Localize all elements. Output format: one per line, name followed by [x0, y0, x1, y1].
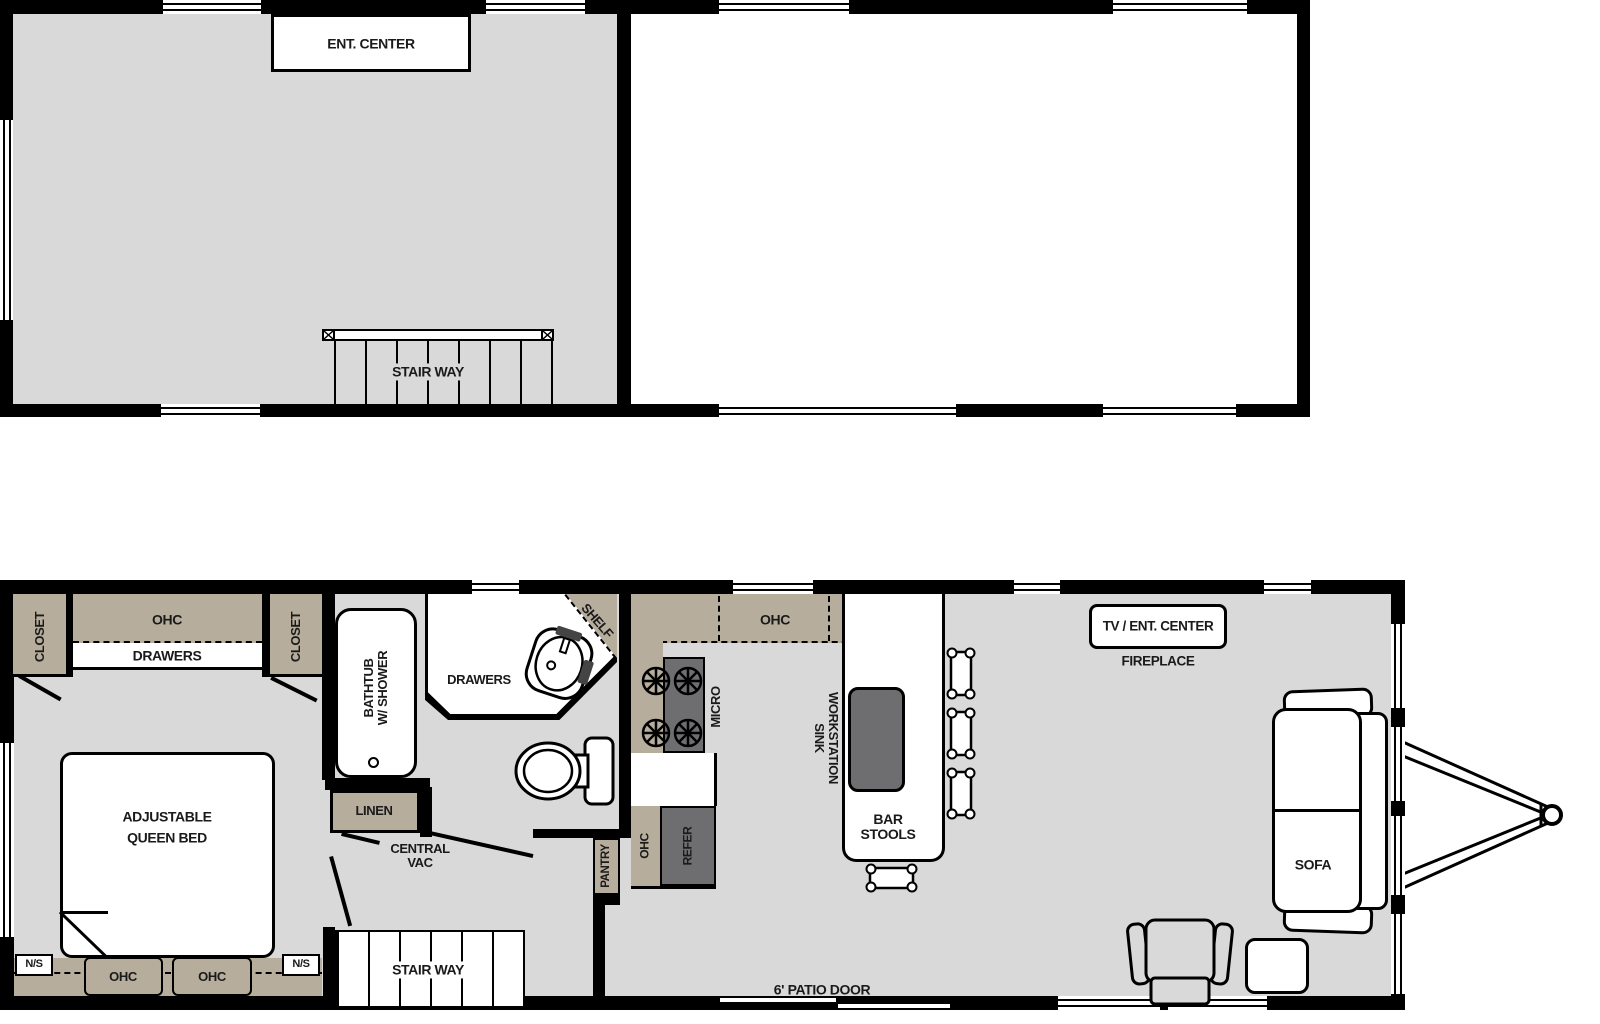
window: [0, 120, 13, 320]
window: [719, 0, 849, 14]
refer-label: REFER: [682, 827, 695, 866]
trailer-hitch-icon: [1398, 735, 1568, 895]
bar-stools-label: BAR STOOLS: [861, 812, 916, 842]
counter-edge: [631, 886, 716, 889]
loft-stair-rail: [322, 329, 554, 341]
kitchen-ohc-top-label: OHC: [760, 612, 790, 627]
tv-ent-center-label: TV / ENT. CENTER: [1103, 620, 1214, 635]
window: [163, 0, 261, 14]
window: [1014, 580, 1060, 594]
nightstand-left-label: N/S: [25, 959, 42, 971]
recliner-icon: [1126, 914, 1234, 1008]
bed-label-2: QUEEN BED: [127, 830, 207, 845]
bedroom-bottom-cabinet-band: [14, 958, 322, 996]
window: [161, 404, 260, 417]
stair-rail-post-icon: [541, 329, 554, 341]
wall-kitchen: [619, 594, 631, 838]
window: [719, 404, 956, 417]
ohc-divider-dash: [718, 596, 720, 641]
wall-bath-hall: [533, 829, 620, 838]
wall-pantry-stub: [593, 895, 620, 905]
cab-stub: [262, 594, 270, 677]
toilet-icon: [512, 733, 618, 809]
wall-stair-stub: [323, 927, 335, 1010]
closet-right-label: CLOSET: [289, 612, 303, 662]
window: [1391, 624, 1405, 708]
main-wall-top: [0, 580, 1391, 594]
stair-rail-post-icon: [322, 329, 335, 341]
bed-fold-line: [61, 911, 108, 914]
window: [486, 0, 585, 14]
nightstand-right-label: N/S: [292, 959, 309, 971]
bar-stool-icon: [946, 766, 976, 821]
loft-ent-center-label: ENT. CENTER: [327, 36, 414, 51]
bedroom-ohc-cab2-label: OHC: [198, 970, 226, 984]
bedroom-ohc-cab1-label: OHC: [109, 970, 137, 984]
bathroom-sink-icon: [520, 624, 600, 704]
wall-bed-bath: [322, 594, 335, 780]
stove-burners-icon: [638, 661, 710, 753]
central-vac-label: CENTRAL VAC: [390, 842, 449, 870]
queen-bed: [60, 752, 275, 958]
wall-tub-bottom: [325, 778, 430, 790]
window: [1264, 580, 1311, 594]
bedroom-ohc-label: OHC: [152, 612, 182, 627]
window: [1113, 0, 1247, 14]
loft-stairway-label: STAIR WAY: [387, 363, 469, 380]
window: [0, 743, 14, 937]
window: [472, 580, 519, 594]
loft-open-area: [631, 13, 1297, 404]
sofa-cushion-divider: [1275, 809, 1359, 812]
wall-stair-kitchen: [593, 905, 605, 996]
vanity-drawers-label: DRAWERS: [447, 673, 511, 687]
bedroom-drawers-label: DRAWERS: [133, 648, 202, 663]
window: [1391, 727, 1405, 801]
window: [1391, 816, 1405, 895]
kitchen-ohc-side-label: OHC: [639, 833, 652, 858]
floorplan-canvas: ENT. CENTER STAIR WAY: [0, 0, 1600, 1024]
loft-wall-right: [1297, 0, 1310, 417]
micro-label: MICRO: [709, 686, 723, 727]
patio-door-label: 6' PATIO DOOR: [774, 982, 870, 997]
closet-left-label: CLOSET: [33, 612, 47, 662]
kitchen-counter-mid: [631, 753, 717, 806]
cabinet-dash-line: [14, 972, 322, 974]
stairway-lower-label: STAIR WAY: [387, 961, 469, 978]
bar-stool-icon: [864, 863, 919, 893]
bed-label-1: ADJUSTABLE: [122, 809, 211, 824]
window: [1103, 404, 1236, 417]
bar-stool-icon: [946, 706, 976, 761]
bathtub-label: BATHTUB W/ SHOWER: [362, 651, 390, 725]
ohc-divider-dash: [828, 596, 830, 641]
end-table: [1245, 938, 1309, 994]
bathtub-drain: [368, 757, 379, 768]
linen-label: LINEN: [355, 804, 392, 818]
wall-linen-right: [420, 787, 432, 837]
window: [1391, 914, 1405, 994]
fireplace-label: FIREPLACE: [1122, 655, 1195, 670]
cab-stub: [66, 594, 73, 677]
workstation-sink-label: WORKSTATION SINK: [812, 692, 840, 784]
sofa-label: SOFA: [1295, 857, 1332, 872]
window: [733, 580, 813, 594]
patio-door-panel: [836, 1002, 952, 1010]
loft-divider-wall: [617, 0, 631, 417]
bar-stool-icon: [946, 646, 976, 701]
workstation-sink: [848, 687, 905, 792]
pantry-label: PANTRY: [600, 844, 612, 888]
